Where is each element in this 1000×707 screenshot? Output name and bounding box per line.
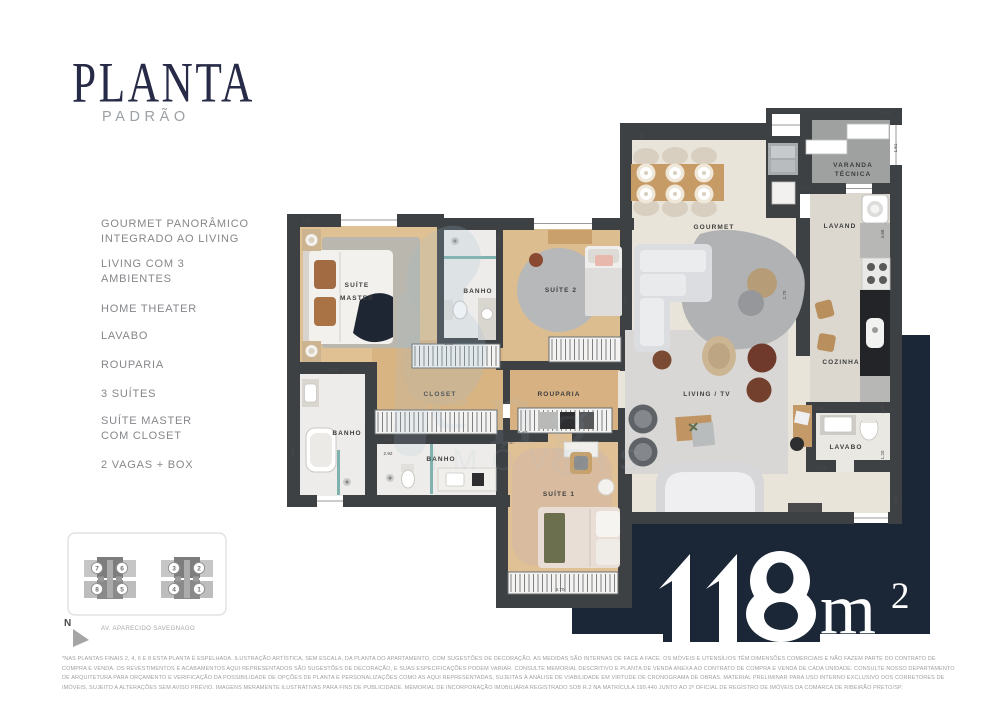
svg-text:5: 5 xyxy=(120,586,124,593)
svg-text:8: 8 xyxy=(95,586,99,593)
svg-text:6: 6 xyxy=(120,565,124,572)
svg-text:7: 7 xyxy=(95,565,99,572)
svg-text:2: 2 xyxy=(197,565,201,572)
svg-text:4: 4 xyxy=(172,586,176,593)
svg-text:3: 3 xyxy=(172,565,176,572)
svg-text:1: 1 xyxy=(197,586,201,593)
